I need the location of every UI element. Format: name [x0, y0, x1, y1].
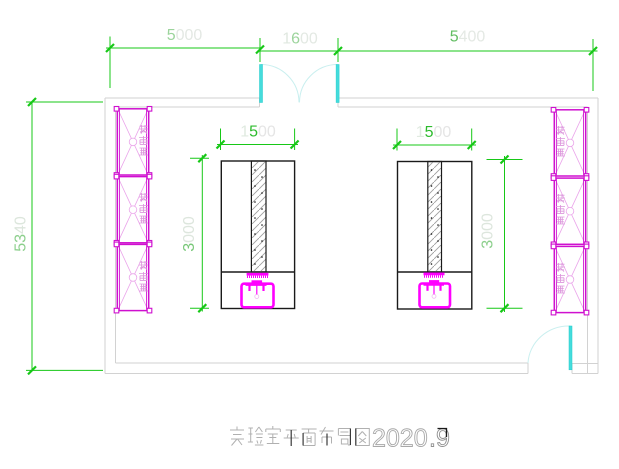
svg-text:1600: 1600 — [282, 31, 318, 48]
svg-text:1500: 1500 — [416, 124, 452, 141]
svg-text:1500: 1500 — [240, 124, 276, 141]
svg-text:5400: 5400 — [450, 29, 486, 46]
svg-text:5000: 5000 — [167, 27, 203, 44]
svg-text:5340: 5340 — [13, 216, 30, 252]
svg-text:3000: 3000 — [480, 213, 497, 249]
svg-text:2020: 2020 — [372, 425, 428, 453]
svg-text:3000: 3000 — [181, 216, 198, 252]
